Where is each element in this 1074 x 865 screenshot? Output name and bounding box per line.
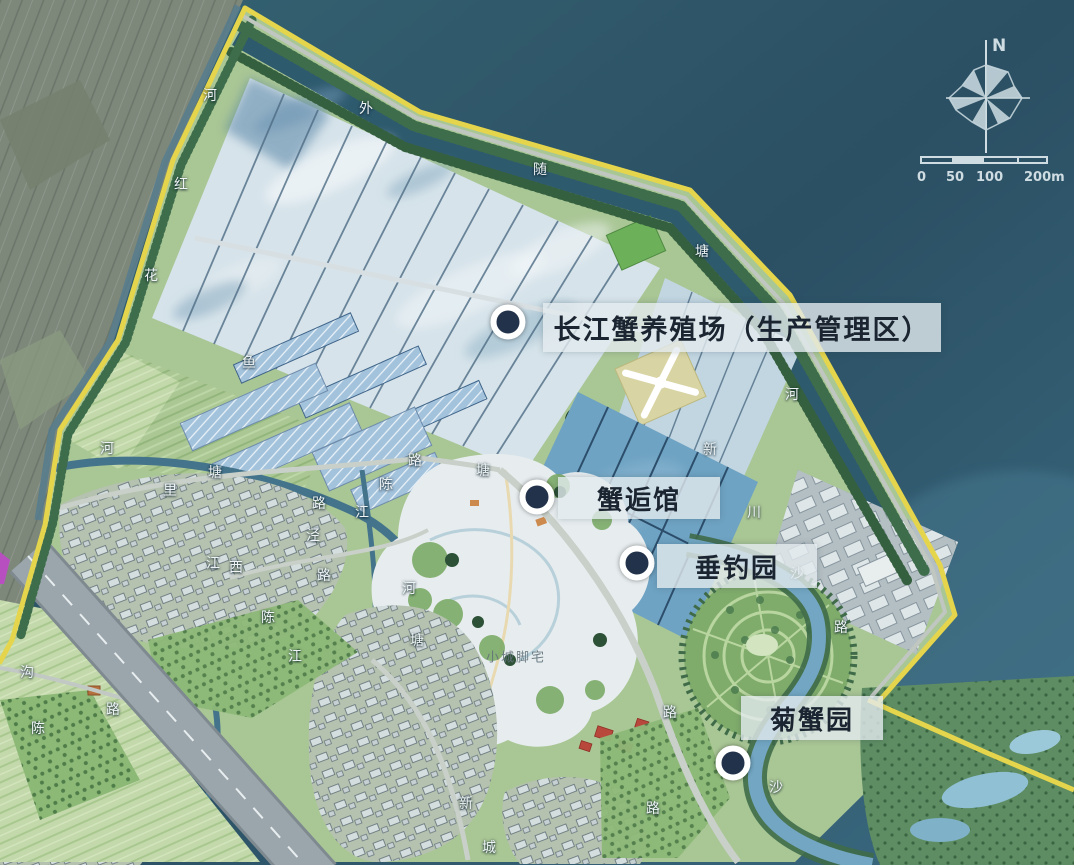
map-text-label: 西 xyxy=(229,557,243,577)
wind-rose-icon xyxy=(916,28,1066,153)
scale-bar: 0 50 100 200m xyxy=(920,156,1070,196)
scale-label-200: 200m xyxy=(1024,170,1065,185)
map-text-label: 塘 xyxy=(208,462,222,482)
poi-marker-xiehou-hall[interactable] xyxy=(520,480,555,515)
map-text-label: 路 xyxy=(408,450,422,470)
map-text-label: 塘 xyxy=(476,460,490,480)
map-text-label: 小城脚宅 xyxy=(486,647,546,666)
map-text-label: 城 xyxy=(482,837,496,857)
map-text-label: 沟 xyxy=(20,662,34,682)
map-text-label: 江 xyxy=(206,553,220,573)
poi-marker-fishing-garden[interactable] xyxy=(620,546,655,581)
map-text-label: 路 xyxy=(317,565,331,585)
scale-label-0: 0 xyxy=(917,170,926,185)
map-text-label: 河 xyxy=(402,578,416,598)
map-text-label: 随 xyxy=(533,159,547,179)
map-text-label: 河 xyxy=(100,438,114,458)
map-text-label: 陈 xyxy=(379,474,393,494)
map-text-label: 路 xyxy=(663,702,677,722)
map-text-label: 路 xyxy=(646,798,660,818)
map-overlays: 河红花外随塘河新川沙路鱼河塘里路陈塘路江泾江西路陈河塘江沟路陈路沙路新城小城脚宅… xyxy=(0,0,1074,865)
map-text-label: 里 xyxy=(163,480,177,500)
map-text-label: 鱼 xyxy=(242,352,256,372)
map-text-label: 新 xyxy=(459,793,473,813)
map-text-label: 川 xyxy=(747,502,761,522)
map-text-label: 泾 xyxy=(306,525,320,545)
map-text-label: 路 xyxy=(106,699,120,719)
site-plan-map: 河红花外随塘河新川沙路鱼河塘里路陈塘路江泾江西路陈河塘江沟路陈路沙路新城小城脚宅… xyxy=(0,0,1074,865)
map-text-label: 花 xyxy=(144,265,158,285)
poi-marker-chrysanthemum-crab-garden[interactable] xyxy=(716,746,751,781)
map-text-label: 河 xyxy=(785,384,799,404)
scale-bar-graphic xyxy=(920,156,1048,164)
map-text-label: 江 xyxy=(288,646,302,666)
poi-label-changjiang-crab-farm: 长江蟹养殖场（生产管理区） xyxy=(543,303,941,352)
map-text-label: 塘 xyxy=(410,630,424,650)
map-text-label: 路 xyxy=(834,617,848,637)
north-label: N xyxy=(992,36,1007,56)
scale-label-50: 50 xyxy=(946,170,964,185)
map-text-label: 塘 xyxy=(695,241,709,261)
map-text-label: 陈 xyxy=(31,718,45,738)
compass: N xyxy=(916,28,1066,153)
poi-marker-changjiang-crab-farm[interactable] xyxy=(491,305,526,340)
map-text-label: 新 xyxy=(703,439,717,459)
poi-label-fishing-garden: 垂钓园 xyxy=(657,544,817,588)
map-text-label: 外 xyxy=(359,98,373,118)
poi-label-chrysanthemum-crab-garden: 菊蟹园 xyxy=(741,696,883,740)
poi-label-xiehou-hall: 蟹逅馆 xyxy=(558,477,720,519)
map-text-label: 红 xyxy=(174,174,188,194)
map-text-label: 江 xyxy=(355,502,369,522)
map-text-label: 路 xyxy=(312,493,326,513)
scale-label-100: 100 xyxy=(976,170,1003,185)
map-text-label: 陈 xyxy=(261,607,275,627)
map-text-label: 沙 xyxy=(769,777,783,797)
map-text-label: 河 xyxy=(203,85,217,105)
